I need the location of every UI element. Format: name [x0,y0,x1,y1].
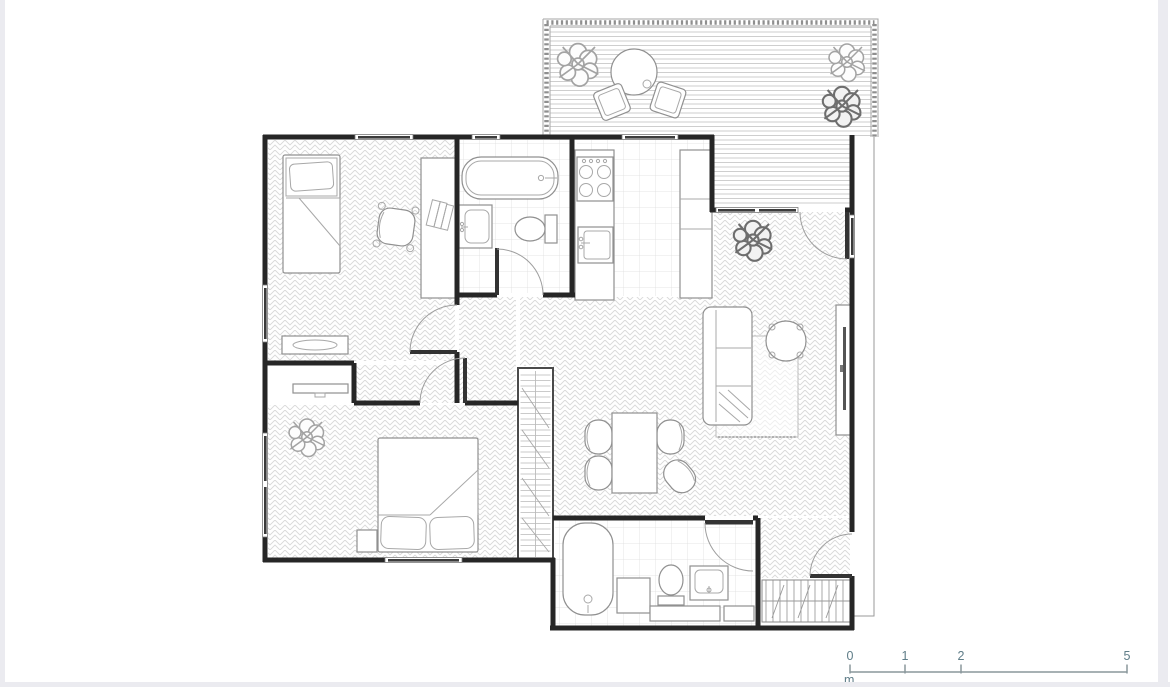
bathroom-cabinet-symbol [650,606,720,621]
page-edge-strip [0,682,1170,687]
shelf-console-symbol [293,384,348,397]
bathtub-symbol [462,157,558,199]
stove-symbol [577,157,613,201]
double-bed-symbol [378,438,478,552]
page-edge-strip [1158,0,1168,687]
scale-tick-label: 2 [958,649,965,663]
sofa-symbol [703,307,752,425]
floor-corridor [459,297,516,403]
toilet-symbol [515,215,557,243]
bathtub-symbol [563,523,613,615]
bathroom-cabinet-symbol [617,578,650,613]
console-table-symbol [282,336,348,354]
window [355,135,413,140]
floor-entry [760,518,850,578]
scale-tick-label: 1 [902,649,909,663]
floor-plan-page: 0 1 2 5 m [0,0,1170,687]
floor-corridor2 [356,365,457,403]
bathroom-cabinet-symbol [724,606,754,621]
scale-tick-label: 5 [1124,649,1131,663]
single-bed-symbol [283,155,340,273]
window [263,285,268,342]
overhang-line [854,137,874,616]
kitchen-counter [680,150,712,298]
window [850,215,855,258]
tv-icon [843,327,846,410]
floor-plan-canvas: 0 1 2 5 m [0,0,1170,687]
kitchen-sink-symbol [578,227,613,263]
doormat-symbol [762,580,850,622]
wall-sink-symbol [459,205,492,248]
window [622,135,678,140]
window [263,433,268,537]
window [385,558,462,563]
dining-table-symbol [612,413,657,493]
toilet-symbol [658,565,684,605]
nightstand-symbol [357,530,377,552]
floor-living-top [714,212,850,297]
window [472,135,500,140]
vanity-sink-symbol [690,566,728,600]
scale-tick-label: 0 [847,649,854,663]
sliding-window [716,208,798,213]
round-armchair-symbol [766,321,806,361]
page-edge-strip [0,0,5,687]
wardrobe-symbol [518,368,553,560]
